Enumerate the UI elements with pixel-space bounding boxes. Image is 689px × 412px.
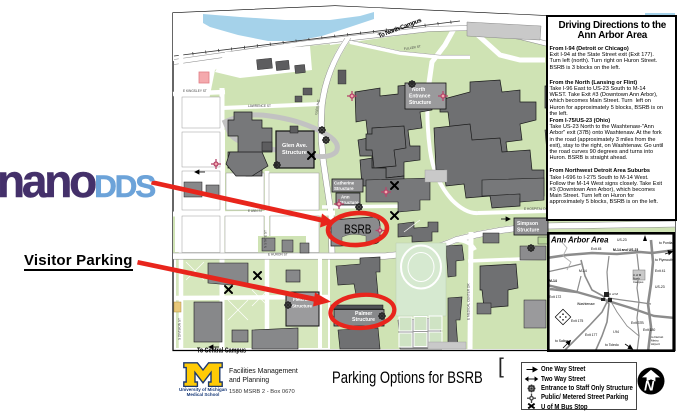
svg-text:M-14 and US-23: M-14 and US-23	[613, 248, 638, 252]
svg-text:Ann Arbor Area: Ann Arbor Area	[550, 236, 609, 245]
svg-text:US-23: US-23	[655, 285, 665, 289]
svg-text:To Central Campus: To Central Campus	[197, 348, 246, 355]
svg-text:E MEDICAL CENTER DR: E MEDICAL CENTER DR	[467, 283, 471, 320]
svg-text:M-14: M-14	[579, 269, 587, 273]
svg-text:Exit 177: Exit 177	[585, 333, 597, 337]
svg-text:Ann: Ann	[341, 195, 350, 200]
svg-text:Entrance: Entrance	[409, 94, 431, 100]
svg-text:Airport: Airport	[651, 342, 660, 346]
svg-text:Exit 180: Exit 180	[643, 328, 655, 332]
svg-text:Structure: Structure	[352, 317, 375, 323]
svg-text:Structure: Structure	[292, 304, 312, 309]
svg-text:Simpson: Simpson	[517, 221, 538, 227]
svg-text:E KINGSLEY ST: E KINGSLEY ST	[183, 89, 207, 93]
svg-text:E HOSPITAL DR: E HOSPITAL DR	[524, 207, 549, 211]
svg-text:to Pontiac: to Pontiac	[659, 241, 674, 245]
svg-text:Campus: Campus	[633, 280, 644, 284]
svg-text:Exit 175: Exit 175	[571, 319, 583, 323]
svg-text:Structure: Structure	[517, 228, 539, 234]
svg-text:S DIVISION ST: S DIVISION ST	[178, 318, 182, 340]
svg-text:M-14: M-14	[549, 279, 557, 283]
svg-text:Exit 41: Exit 41	[655, 269, 665, 273]
svg-text:Glen Ave.: Glen Ave.	[282, 143, 308, 149]
svg-text:US-23: US-23	[617, 238, 627, 242]
svg-text:to Toledo: to Toledo	[605, 343, 619, 347]
svg-text:Exit 172: Exit 172	[549, 295, 561, 299]
svg-text:Structure: Structure	[282, 150, 307, 156]
svg-text:Exit 37B: Exit 37B	[631, 321, 644, 325]
svg-text:I-94: I-94	[613, 330, 619, 334]
svg-text:BSRB: BSRB	[344, 222, 372, 237]
svg-text:N: N	[644, 378, 655, 394]
svg-text:to Plymouth: to Plymouth	[655, 258, 673, 262]
svg-text:Washtenaw: Washtenaw	[577, 302, 595, 306]
svg-text:E ANN ST: E ANN ST	[248, 209, 263, 213]
svg-text:E HURON ST: E HURON ST	[268, 253, 288, 257]
svg-text:N STATE ST: N STATE ST	[264, 230, 268, 248]
svg-text:Structure: Structure	[409, 100, 431, 106]
svg-text:LAWRENCE ST: LAWRENCE ST	[248, 104, 271, 108]
svg-text:Exit 45: Exit 45	[591, 247, 601, 251]
svg-text:U of M: U of M	[609, 292, 618, 296]
svg-text:Catherine: Catherine	[334, 181, 355, 186]
svg-text:Structure: Structure	[334, 186, 354, 191]
svg-text:North: North	[412, 87, 425, 93]
